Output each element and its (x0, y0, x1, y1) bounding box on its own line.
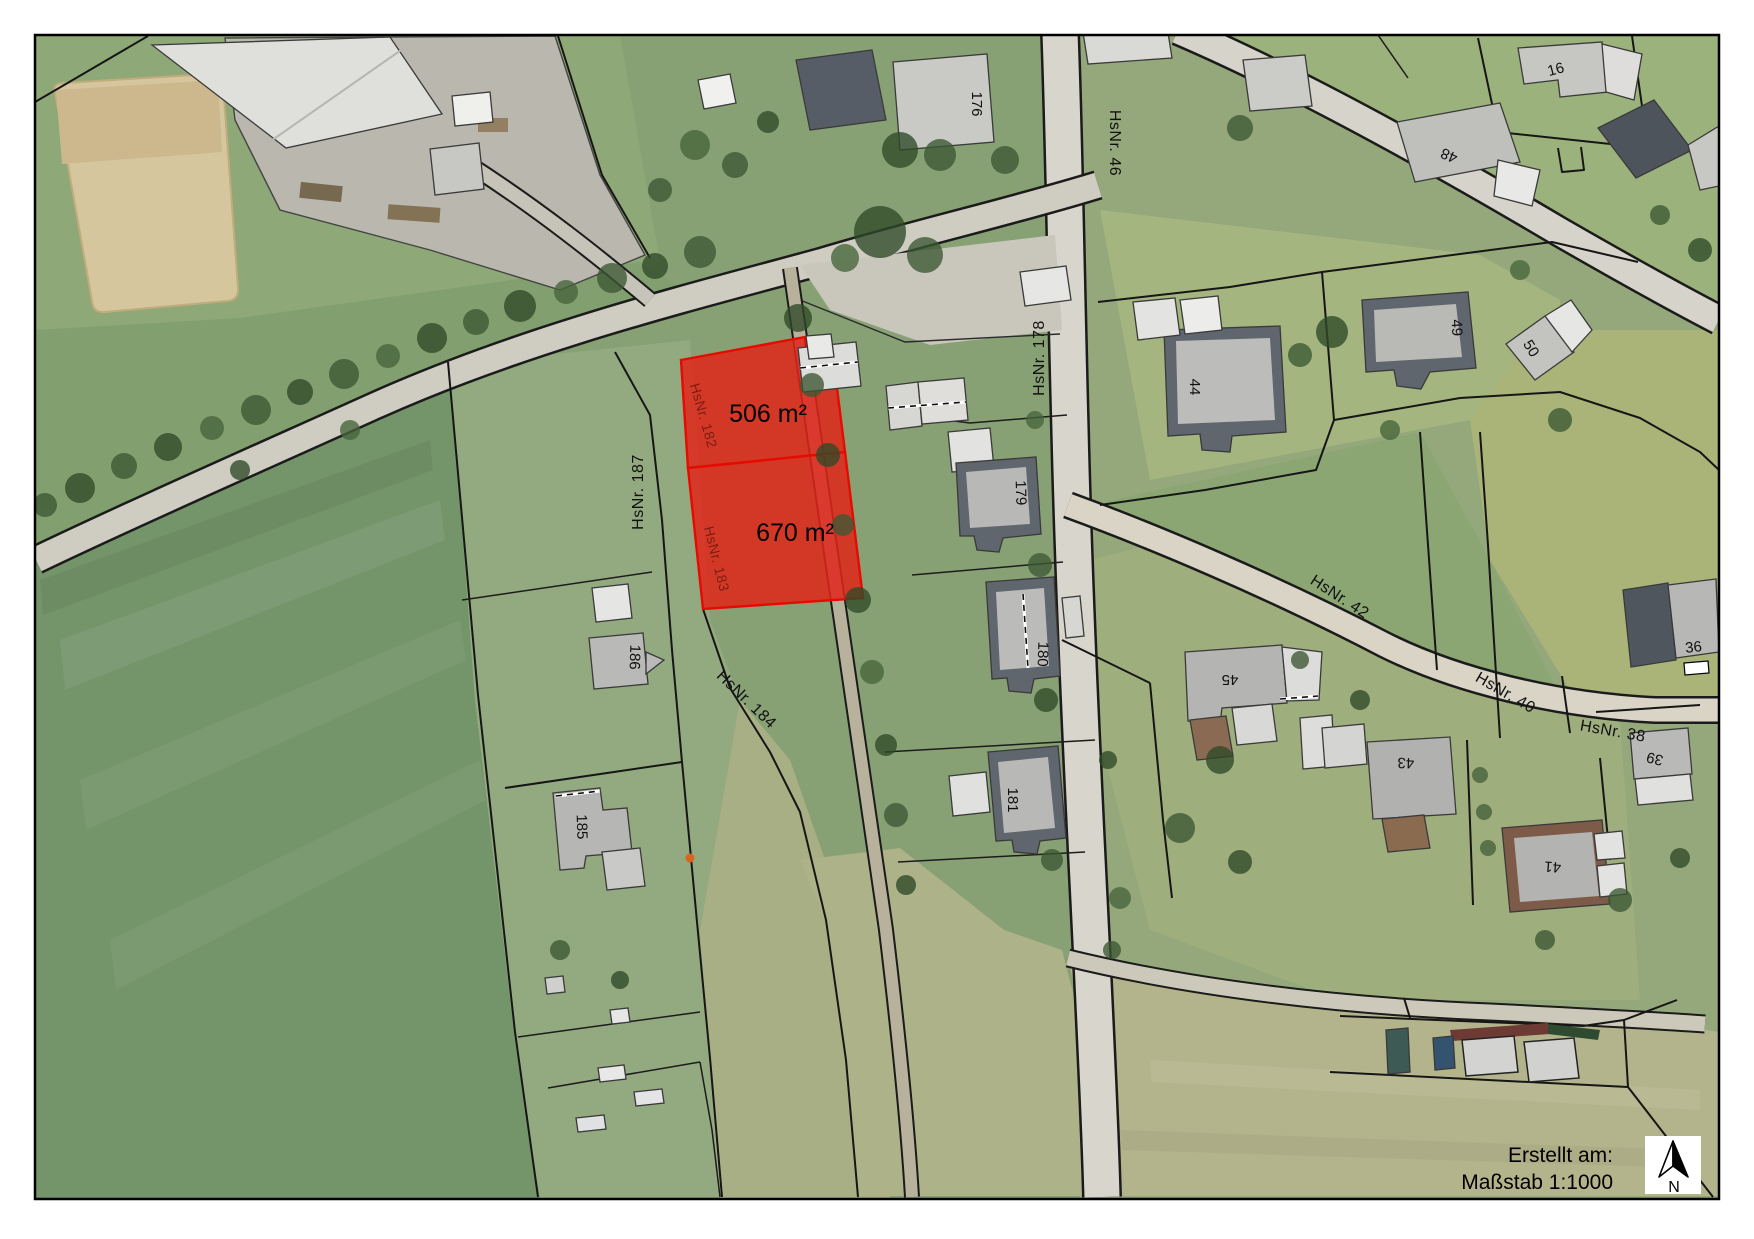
building-label-44: 44 (1186, 379, 1203, 396)
orange-marker (686, 854, 695, 863)
building-label-45: 45 (1222, 671, 1239, 688)
north-arrow: N (1645, 1136, 1701, 1196)
building-label-41: 41 (1544, 857, 1562, 875)
building-label-186: 186 (626, 644, 644, 670)
building-label-185: 185 (573, 814, 591, 840)
building-label-36: 36 (1684, 638, 1702, 657)
area-label-506: 506 m² (729, 400, 807, 428)
building-label-181: 181 (1004, 787, 1021, 812)
street-label-187: HsNr. 187 (630, 454, 647, 530)
street-label-178: HsNr. 178 (1031, 320, 1048, 396)
building-label-179: 179 (1012, 480, 1030, 506)
cadastral-map-page: 506 m² 670 m² HsNr. 182 HsNr. 183 HsNr. … (0, 0, 1754, 1239)
building-label-176: 176 (968, 91, 985, 116)
created-at-label: Erstellt am: (1508, 1144, 1613, 1167)
scale-label: Maßstab 1:1000 (1461, 1171, 1613, 1194)
building-label-180: 180 (1034, 641, 1052, 667)
street-label-46: HsNr. 46 (1106, 110, 1123, 176)
map-canvas: 506 m² 670 m² HsNr. 182 HsNr. 183 HsNr. … (0, 0, 1754, 1239)
area-label-670: 670 m² (756, 519, 834, 547)
aerial-imagery: 506 m² 670 m² HsNr. 182 HsNr. 183 HsNr. … (33, 20, 1719, 1199)
north-label: N (1668, 1179, 1680, 1196)
building-label-49: 49 (1448, 319, 1466, 337)
building-label-43: 43 (1397, 754, 1414, 772)
